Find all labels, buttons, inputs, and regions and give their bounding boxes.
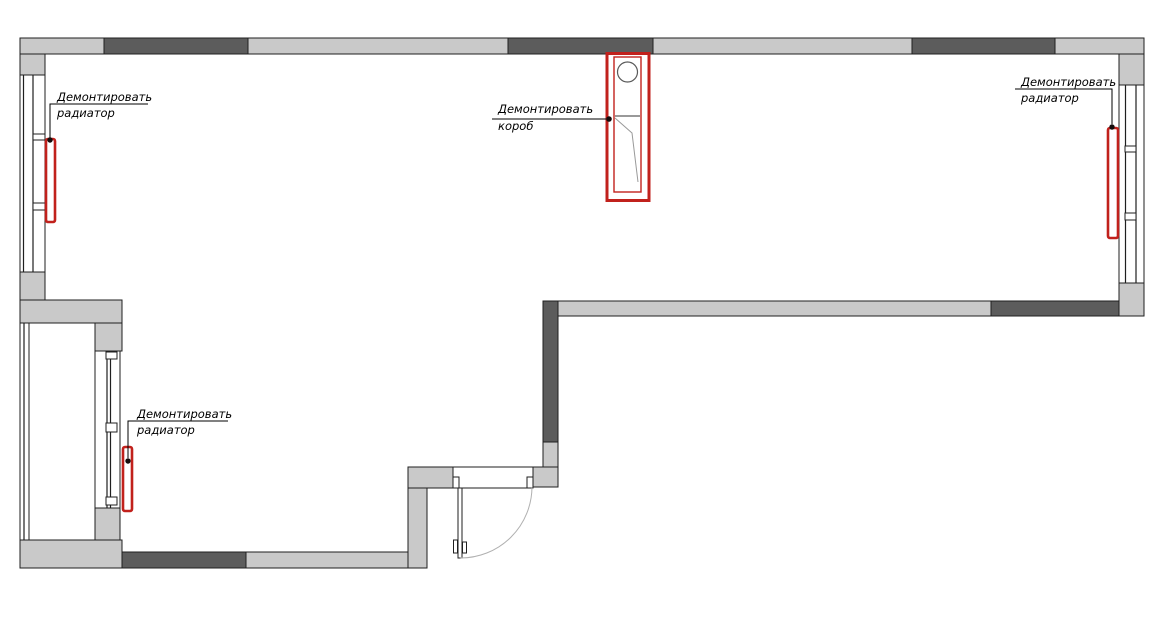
wall-left-corner-top [20, 54, 45, 75]
window-left-transom-2 [33, 203, 45, 210]
window-left-transom-1 [33, 134, 45, 140]
door-leaf [458, 488, 462, 558]
label-text: Демонтировать [56, 90, 152, 104]
label-text: радиатор [56, 106, 115, 120]
window-right-transom-2 [1125, 213, 1136, 220]
wall-top-dark-segment-3 [912, 38, 1055, 54]
wall-door-pier [408, 488, 427, 568]
wall-door-corner-block [533, 467, 558, 487]
leader-dot [125, 458, 130, 463]
label-text: радиатор [136, 423, 195, 437]
label-text: Демонтировать [497, 102, 593, 116]
demolition-elements [46, 54, 1118, 512]
wall-door-stub [408, 467, 453, 488]
walls [20, 38, 1144, 568]
radiator-top-right [1108, 128, 1118, 238]
label-text: короб [498, 119, 533, 133]
window-left-wall [20, 75, 45, 272]
door-jamb-right [527, 477, 533, 488]
window-balcony-transom-2 [106, 423, 117, 432]
duct-outer-frame [607, 54, 649, 201]
leader-dot [1109, 124, 1114, 129]
window-right-transom-1 [1125, 146, 1136, 152]
label-text: Демонтировать [1020, 75, 1116, 89]
door-swing-arc [461, 487, 533, 558]
wall-balcony-pier-top [95, 323, 122, 351]
label-text: радиатор [1020, 91, 1079, 105]
wall-bottom-light-segment [246, 552, 427, 568]
wall-upper-room-bottom-dark [991, 301, 1119, 316]
leader-dot [47, 137, 52, 142]
wall-top-dark-segment-2 [508, 38, 653, 54]
annotations: Демонтировать радиатор Демонтировать кор… [47, 75, 1116, 464]
door-handle-mark-2 [463, 542, 467, 553]
wall-balcony-top-band [20, 300, 122, 323]
window-right-wall [1119, 85, 1144, 283]
floor-plan: Демонтировать радиатор Демонтировать кор… [0, 0, 1167, 640]
wall-top-dark-segment-1 [104, 38, 248, 54]
entrance-door [453, 467, 533, 558]
window-balcony-transom-3 [106, 497, 117, 505]
leader-dot [606, 116, 612, 122]
label-radiator-top-right: Демонтировать радиатор [1015, 75, 1116, 130]
wall-bottom-dark-segment [122, 552, 246, 568]
window-balcony-transom-1 [106, 352, 117, 359]
label-duct: Демонтировать короб [492, 102, 612, 133]
wall-middle-dark [543, 301, 558, 442]
door-jamb-left [453, 477, 459, 488]
duct-box [607, 54, 649, 201]
window-right-frame [1119, 85, 1144, 283]
label-text: Демонтировать [136, 407, 232, 421]
door-opening [453, 467, 533, 488]
wall-balcony-bottom-band [20, 540, 122, 568]
window-balcony-outer [20, 323, 29, 540]
radiator-top-left [46, 139, 55, 222]
wall-right-corner-bottom [1119, 283, 1144, 316]
wall-balcony-pier-bottom [95, 508, 120, 540]
label-radiator-top-left: Демонтировать радиатор [47, 90, 152, 143]
floor-plan-canvas: Демонтировать радиатор Демонтировать кор… [0, 0, 1167, 640]
window-balcony-room [95, 351, 120, 508]
door-handle-mark-1 [454, 540, 458, 553]
wall-right-corner-top [1119, 54, 1144, 85]
label-radiator-bottom-left: Демонтировать радиатор [125, 407, 232, 464]
